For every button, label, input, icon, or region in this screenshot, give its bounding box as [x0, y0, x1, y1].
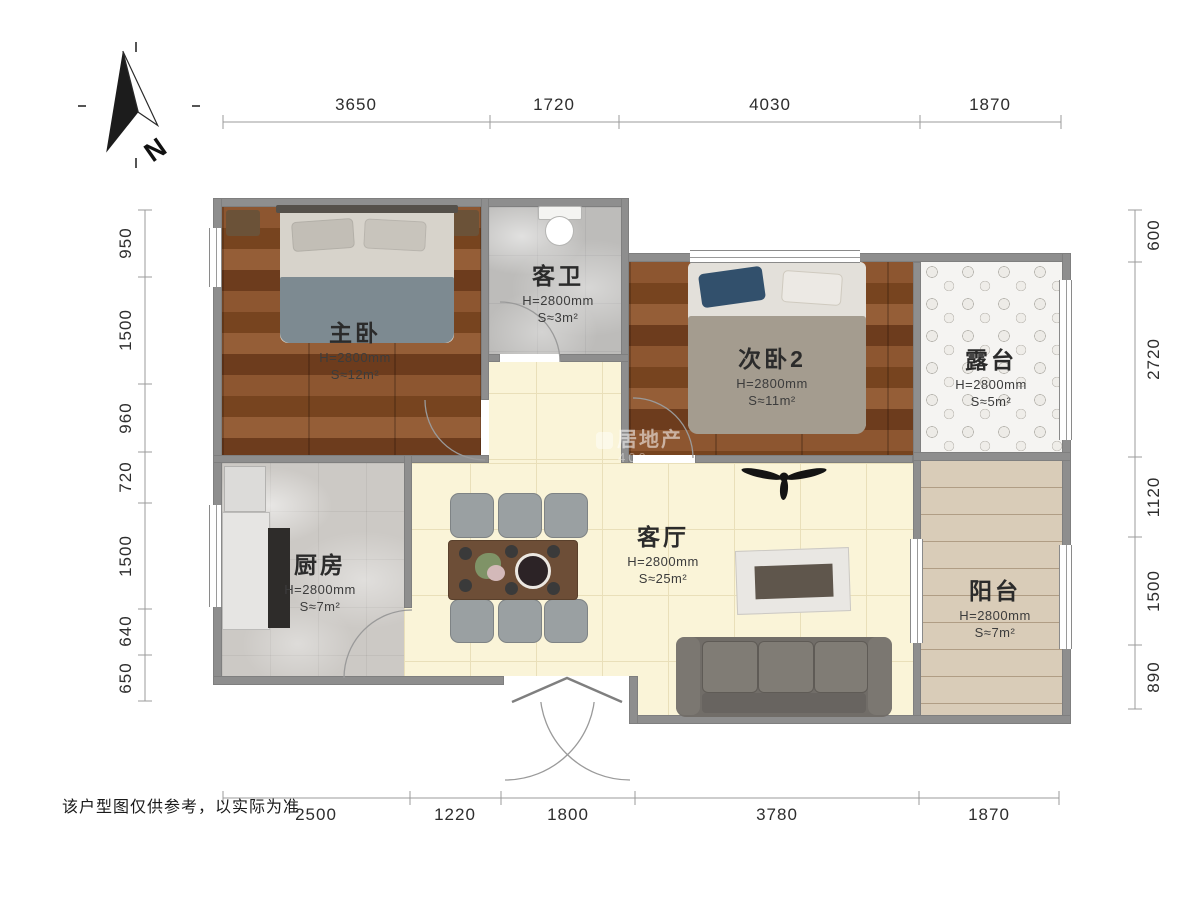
room-label-living: 客厅 H=2800mm S≈25m²	[627, 518, 699, 586]
watermark: 居地产 400	[596, 429, 683, 465]
plate	[505, 545, 518, 558]
sofa-seat	[702, 693, 866, 713]
plate	[505, 582, 518, 595]
bed-pillow	[781, 270, 843, 306]
room-label-bath: 客卫 H=2800mm S≈3m²	[522, 257, 594, 325]
terrace-window	[1059, 280, 1072, 440]
dim-top-3: 4030	[749, 95, 791, 115]
room-area: S≈25m²	[627, 571, 699, 586]
tv-screen	[754, 564, 833, 600]
dim-left-7: 650	[116, 662, 136, 693]
room-name: 客卫	[522, 257, 594, 291]
bed-headboard	[276, 205, 458, 213]
dim-top-2: 1720	[533, 95, 575, 115]
flower-centerpiece	[487, 565, 505, 581]
tv-console	[735, 547, 851, 615]
room-height: H=2800mm	[319, 350, 391, 365]
dim-right-3: 1120	[1144, 477, 1164, 518]
room-name: 阳台	[959, 572, 1031, 606]
dim-right-5: 890	[1144, 661, 1164, 692]
north-compass-icon	[78, 42, 200, 168]
wall-bed2-living	[695, 455, 913, 463]
room-area: S≈11m²	[736, 393, 808, 408]
toilet-bowl	[545, 216, 574, 246]
room-label-kitchen: 厨房 H=2800mm S≈7m²	[284, 546, 356, 614]
plate	[547, 582, 560, 595]
dim-left-2: 1500	[116, 309, 136, 351]
room-height: H=2800mm	[736, 376, 808, 391]
fridge	[224, 466, 266, 512]
room-label-balcony: 阳台 H=2800mm S≈7m²	[959, 572, 1031, 640]
room-name: 客厅	[627, 518, 699, 552]
entry-door-leaves	[512, 678, 622, 702]
floor-plan: N 3650 1720 4030 1870 2500 1220 1800 378…	[0, 0, 1200, 900]
room-name: 露台	[955, 341, 1027, 375]
room-label-bed2: 次卧2 H=2800mm S≈11m²	[736, 340, 808, 408]
room-height: H=2800mm	[627, 554, 699, 569]
wall-bath-south-west	[488, 354, 500, 362]
dimension-line-right	[1128, 210, 1142, 709]
wall-terrace-balcony-divider-v	[913, 262, 921, 724]
sofa	[676, 637, 892, 717]
dim-left-3: 960	[116, 402, 136, 433]
sofa-armrest	[676, 637, 700, 715]
dining-chair	[544, 493, 588, 538]
room-area: S≈12m²	[319, 367, 391, 382]
balcony-window	[1059, 545, 1072, 649]
disclaimer-text: 该户型图仅供参考，以实际为准	[62, 793, 300, 817]
watermark-subtext: 400	[618, 451, 683, 465]
kitchen-window	[209, 505, 222, 607]
bedroom2-window	[690, 250, 860, 263]
dim-left-1: 950	[116, 227, 136, 258]
wall-terrace-balcony-divider-h	[913, 452, 1071, 461]
entry-door-arc-right	[540, 690, 630, 780]
living-balcony-window	[910, 539, 923, 643]
room-height: H=2800mm	[522, 293, 594, 308]
dimension-line-top	[223, 115, 1061, 129]
dining-table	[448, 540, 578, 600]
dim-bottom-3: 1800	[547, 805, 589, 825]
room-height: H=2800mm	[284, 582, 356, 597]
dim-right-4: 1500	[1144, 570, 1164, 612]
sofa-armrest	[868, 637, 892, 715]
room-name: 主卧	[319, 314, 391, 348]
dining-chair	[498, 599, 542, 643]
room-name: 厨房	[284, 546, 356, 580]
dining-chair	[450, 599, 494, 643]
dim-right-1: 600	[1144, 219, 1164, 250]
plate	[547, 545, 560, 558]
dimension-line-left	[138, 210, 152, 701]
wall-master-bath-divider	[481, 198, 489, 400]
toilet	[538, 206, 580, 246]
room-area: S≈7m²	[959, 625, 1031, 640]
dim-left-5: 1500	[116, 535, 136, 577]
dim-bottom-2: 1220	[434, 805, 476, 825]
watermark-text: 居地产	[617, 429, 683, 451]
dim-left-4: 720	[116, 461, 136, 492]
master-window	[209, 228, 222, 287]
room-area: S≈3m²	[522, 310, 594, 325]
dim-left-6: 640	[116, 615, 136, 646]
bed-pillow	[363, 218, 426, 251]
dim-bottom-5: 1870	[968, 805, 1010, 825]
dim-right-2: 2720	[1144, 338, 1164, 380]
dining-chair	[450, 493, 494, 538]
entry-door-arc-left	[505, 690, 595, 780]
dim-top-4: 1870	[969, 95, 1011, 115]
dim-bottom-4: 3780	[756, 805, 798, 825]
watermark-logo-icon	[596, 432, 613, 449]
wall-south-kitchen	[213, 676, 504, 685]
plate	[459, 579, 472, 592]
room-area: S≈5m²	[955, 394, 1027, 409]
dining-chair	[498, 493, 542, 538]
dimension-line-bottom	[223, 791, 1059, 805]
room-label-master: 主卧 H=2800mm S≈12m²	[319, 314, 391, 382]
room-height: H=2800mm	[955, 377, 1027, 392]
wall-master-kitchen	[213, 455, 489, 463]
wall-kitchen-living-divider	[404, 455, 412, 608]
room-area: S≈7m²	[284, 599, 356, 614]
dining-chair	[544, 599, 588, 643]
wall-bath-south-east	[560, 354, 629, 362]
plate	[459, 547, 472, 560]
bed-pillow	[291, 218, 355, 252]
room-name: 次卧2	[736, 340, 808, 374]
wall-bath-bed2-divider	[621, 198, 629, 463]
sofa-cushion	[702, 641, 758, 693]
dim-bottom-1: 2500	[295, 805, 337, 825]
room-label-terrace: 露台 H=2800mm S≈5m²	[955, 341, 1027, 409]
fruit-bowl	[515, 553, 551, 589]
compass-north-label: N	[139, 131, 174, 168]
sofa-cushion	[814, 641, 868, 693]
nightstand	[226, 210, 260, 236]
room-height: H=2800mm	[959, 608, 1031, 623]
dim-top-1: 3650	[335, 95, 377, 115]
sofa-cushion	[758, 641, 814, 693]
kitchen-counter	[222, 512, 270, 630]
